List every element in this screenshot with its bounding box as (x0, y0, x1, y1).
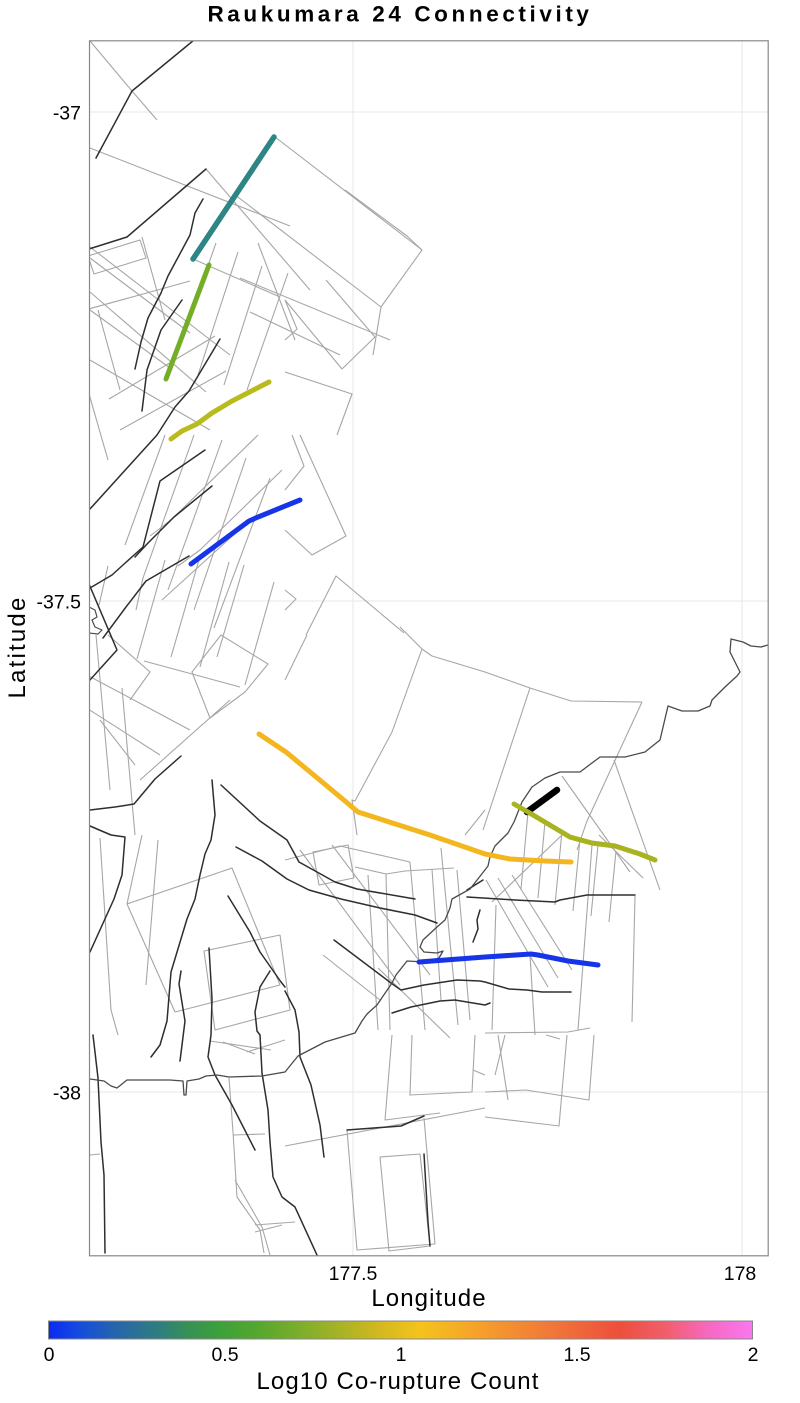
svg-text:0.5: 0.5 (211, 1344, 238, 1366)
svg-text:-37: -37 (53, 103, 81, 125)
svg-text:1.5: 1.5 (563, 1344, 590, 1366)
svg-text:0: 0 (44, 1344, 55, 1366)
svg-text:-37.5: -37.5 (37, 592, 82, 614)
svg-text:2: 2 (748, 1344, 759, 1366)
svg-text:Longitude: Longitude (371, 1285, 486, 1312)
svg-text:-38: -38 (53, 1083, 81, 1105)
svg-text:1: 1 (396, 1344, 407, 1366)
svg-text:Log10 Co-rupture Count: Log10 Co-rupture Count (256, 1368, 539, 1395)
svg-text:Latitude: Latitude (4, 595, 31, 698)
svg-text:Raukumara 24 Connectivity: Raukumara 24 Connectivity (207, 1, 592, 26)
svg-text:178: 178 (724, 1263, 757, 1285)
svg-text:177.5: 177.5 (329, 1263, 378, 1285)
